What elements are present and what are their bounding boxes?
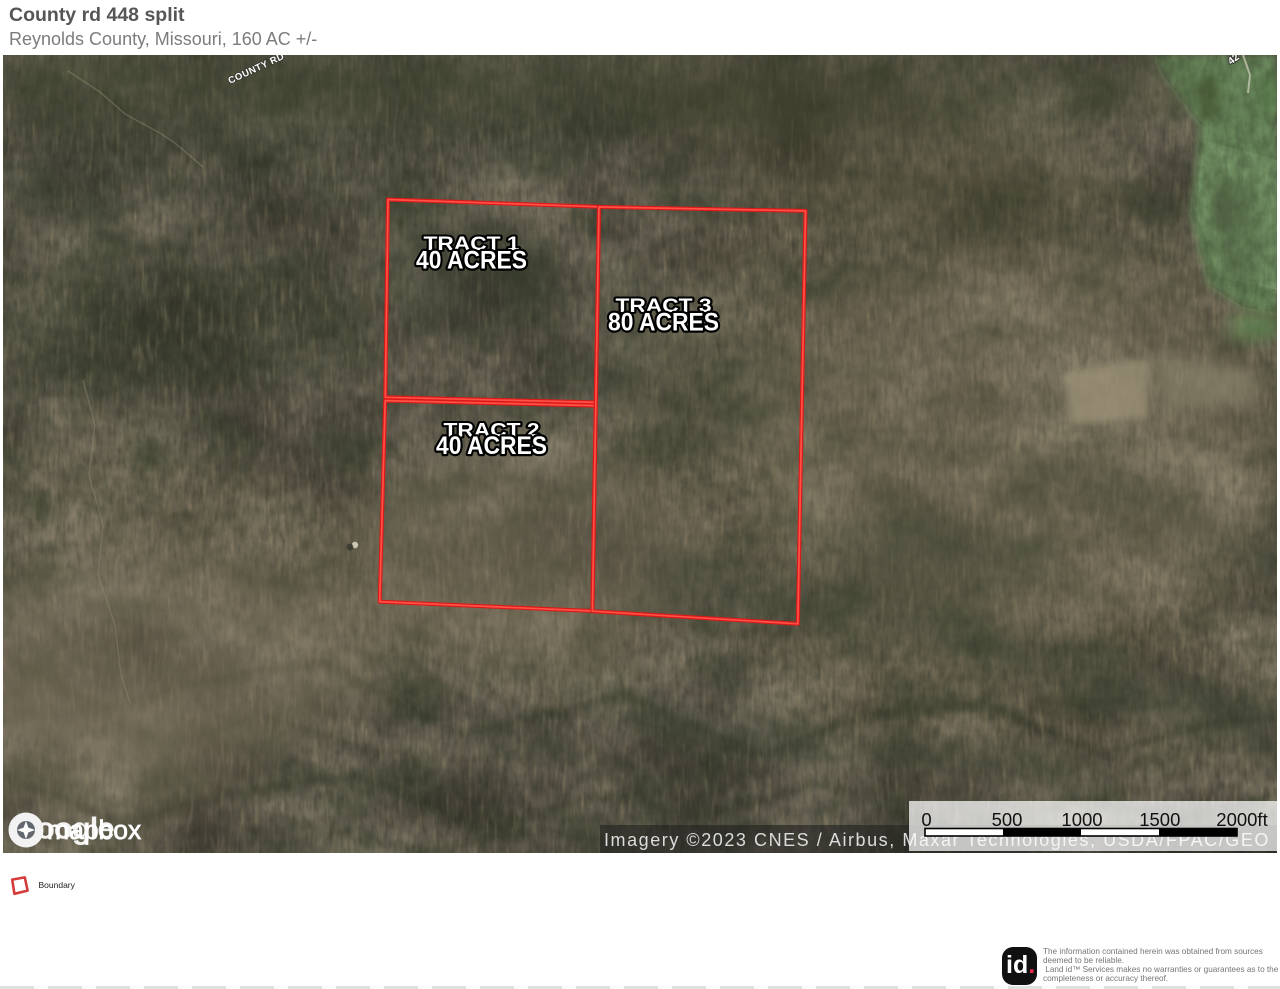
svg-text:0: 0 xyxy=(921,809,931,830)
svg-text:40 ACRES: 40 ACRES xyxy=(436,432,547,460)
svg-text:1000: 1000 xyxy=(1061,809,1102,830)
svg-text:500: 500 xyxy=(992,809,1023,830)
svg-text:1500: 1500 xyxy=(1139,809,1180,830)
svg-text:mapbox: mapbox xyxy=(47,815,141,845)
svg-text:2000ft: 2000ft xyxy=(1216,809,1267,830)
svg-text:40 ACRES: 40 ACRES xyxy=(416,246,527,274)
svg-text:80 ACRES: 80 ACRES xyxy=(608,308,719,336)
